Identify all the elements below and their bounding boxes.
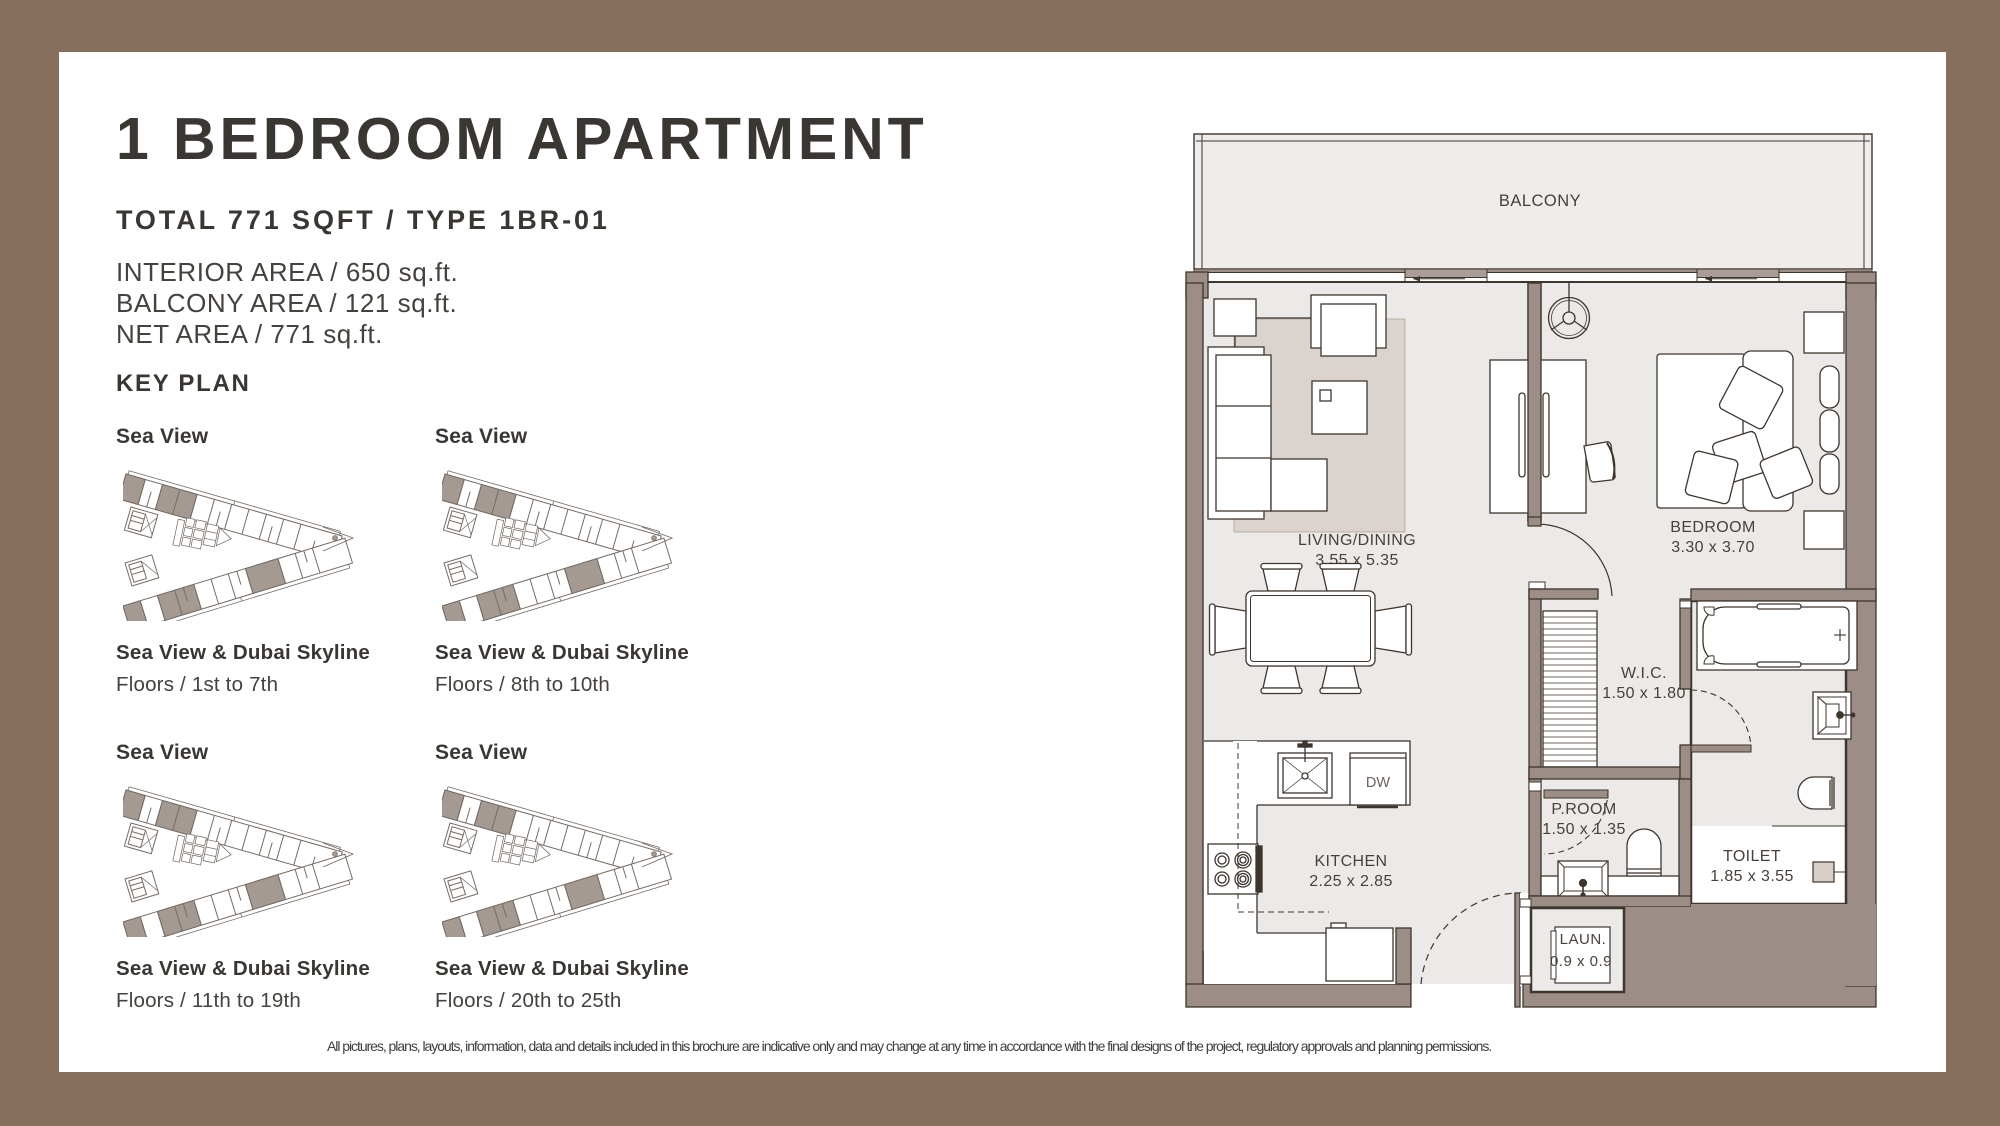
svg-text:DW: DW: [1366, 775, 1390, 791]
svg-text:1.50 x 1.35: 1.50 x 1.35: [1542, 821, 1626, 838]
svg-text:BEDROOM: BEDROOM: [1670, 519, 1755, 536]
svg-text:TOILET: TOILET: [1723, 848, 1781, 865]
svg-text:3.30 x 3.70: 3.30 x 3.70: [1671, 539, 1755, 556]
svg-text:KITCHEN: KITCHEN: [1314, 853, 1387, 870]
svg-text:2.25 x 2.85: 2.25 x 2.85: [1309, 873, 1393, 890]
svg-text:LIVING/DINING: LIVING/DINING: [1298, 532, 1416, 549]
svg-text:1.50 x 1.80: 1.50 x 1.80: [1602, 685, 1686, 702]
svg-text:P.ROOM: P.ROOM: [1551, 801, 1616, 818]
svg-text:BALCONY: BALCONY: [1499, 192, 1581, 210]
svg-text:0.9 x 0.9: 0.9 x 0.9: [1550, 953, 1612, 970]
svg-text:1.85 x 3.55: 1.85 x 3.55: [1710, 868, 1794, 885]
svg-text:LAUN.: LAUN.: [1560, 931, 1607, 948]
svg-text:W.I.C.: W.I.C.: [1621, 665, 1667, 682]
